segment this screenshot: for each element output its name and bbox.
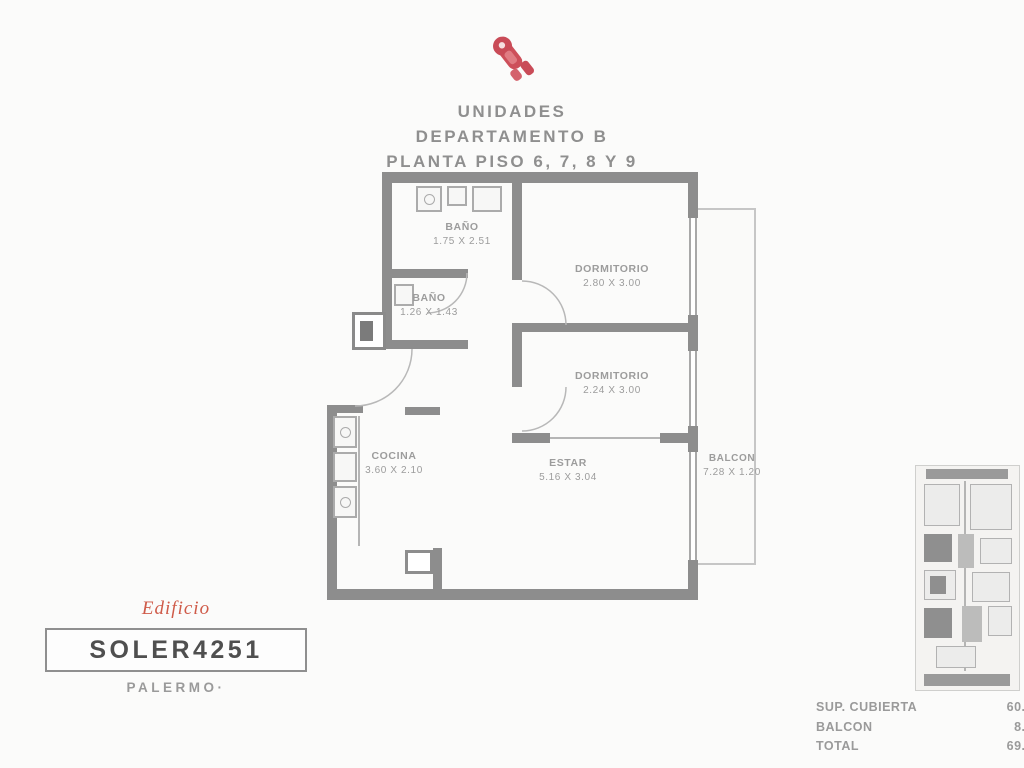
kitchen-stove-icon	[333, 486, 357, 518]
header-title-unidades: UNIDADES	[362, 99, 662, 124]
kitchen-counter-line	[358, 416, 360, 546]
room-label-bath1: BAÑO 1.75 X 2.51	[412, 221, 512, 248]
room-label-kitchen: COCINA 3.60 X 2.10	[344, 450, 444, 477]
bathroom-shower-icon	[472, 186, 502, 212]
area-row-cubierta: SUP. CUBIERTA 60.67M²	[816, 698, 1024, 718]
wall-left-upper	[382, 172, 392, 278]
neighborhood-label: PALERMO·	[45, 680, 307, 695]
room-label-bedroom2: DORMITORIO 2.24 X 3.00	[542, 370, 682, 397]
key-logo-icon	[486, 30, 538, 93]
header-title-planta: PLANTA PISO 6, 7, 8 Y 9	[362, 149, 662, 174]
service-shaft	[352, 312, 386, 350]
wall-right-a	[688, 172, 698, 218]
building-name-box: SOLER4251	[45, 628, 307, 672]
wall-kitchen-bottom-stub	[433, 548, 442, 600]
wall-right-c	[688, 426, 698, 452]
window-bedroom2	[689, 351, 697, 426]
wall-bedroom2-bottom-left	[512, 433, 550, 443]
wall-bath-bedroom-separator	[512, 172, 522, 280]
room-label-bedroom1: DORMITORIO 2.80 X 3.00	[542, 263, 682, 290]
wall-bedroom-separator	[512, 323, 698, 332]
area-row-total: TOTAL 69.36M²	[816, 737, 1024, 757]
header-title-departamento: DEPARTAMENTO B	[362, 124, 662, 149]
kitchen-sink-icon	[333, 416, 357, 448]
wall-right-b	[688, 315, 698, 351]
building-name: SOLER4251	[89, 636, 262, 665]
wall-entry-stub	[405, 407, 440, 415]
key-plan-thumbnail	[915, 465, 1020, 691]
wall-bath2-bottom	[382, 340, 468, 349]
bathroom-sink-icon	[416, 186, 442, 212]
wall-bedroom2-left	[512, 332, 522, 387]
partition-line	[550, 437, 660, 439]
wall-bath1-bottom	[382, 269, 468, 278]
edificio-script-label: Edificio	[45, 598, 307, 620]
bathroom-toilet-icon	[447, 186, 467, 206]
wall-bottom	[335, 589, 698, 600]
wall-top	[382, 172, 698, 183]
window-bedroom1	[689, 218, 697, 315]
room-label-living: ESTAR 5.16 X 3.04	[508, 457, 628, 484]
balcony-outline	[698, 208, 756, 565]
room-label-balcony: BALCON 7.28 X 1.20	[688, 452, 776, 479]
structural-column	[405, 550, 433, 574]
room-label-bath2: BAÑO 1.26 X 1.43	[388, 292, 470, 319]
wall-kitchen-top	[327, 405, 363, 413]
header: UNIDADES DEPARTAMENTO B PLANTA PISO 6, 7…	[362, 30, 662, 174]
surface-areas-table: SUP. CUBIERTA 60.67M² BALCON 8.69M² TOTA…	[816, 698, 1024, 757]
area-row-balcon: BALCON 8.69M²	[816, 718, 1024, 738]
